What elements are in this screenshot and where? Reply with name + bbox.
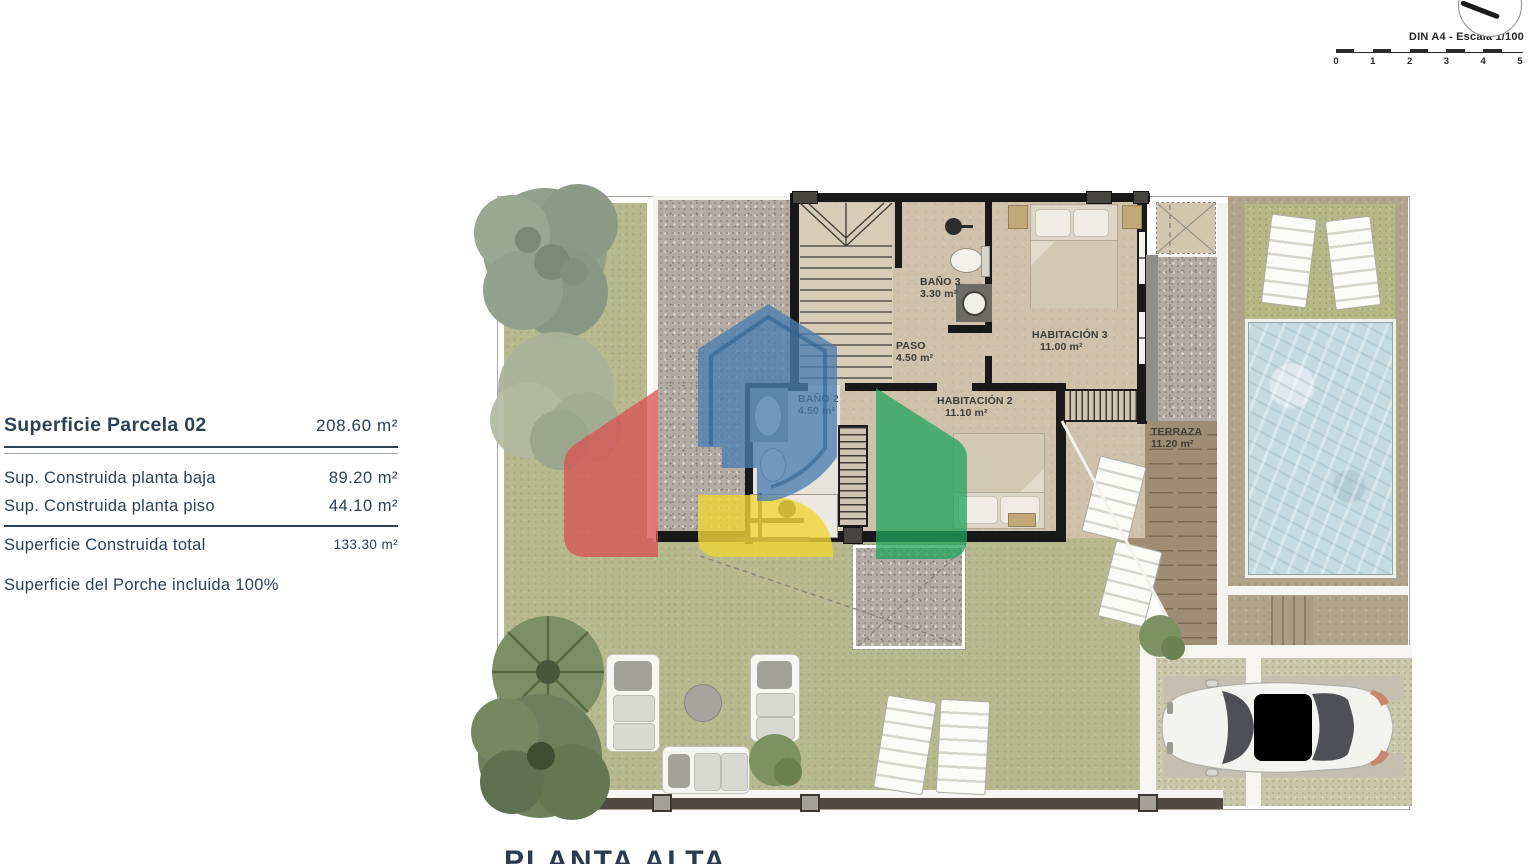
total-value: 133.30 m² <box>334 537 398 552</box>
summary-row: Sup. Construida planta baja 89.20 m² <box>4 464 398 492</box>
parcel-area-value: 208.60 m² <box>316 416 398 436</box>
row-value: 44.10 m² <box>329 492 398 520</box>
path-strip <box>1228 586 1408 595</box>
tick: 2 <box>1407 56 1412 67</box>
toilet-tank <box>981 246 990 277</box>
summary-total-row: Superficie Construida total 133.30 m² <box>4 536 398 555</box>
tick: 4 <box>1481 56 1486 67</box>
side-gravel-strip <box>1157 257 1217 421</box>
scale-dash <box>1483 49 1501 53</box>
wardrobe <box>1063 389 1139 422</box>
nightstand <box>1008 205 1028 229</box>
scale-line <box>1336 52 1523 53</box>
row-value: 89.20 m² <box>329 464 398 492</box>
room-label-terraza: TERRAZA11.20 m² <box>1151 426 1202 451</box>
wall <box>985 356 992 383</box>
shower-head-icon <box>778 500 796 518</box>
window-line <box>1139 337 1145 339</box>
roof-gravel-lower <box>653 385 753 542</box>
compass-needle <box>1460 0 1500 19</box>
scale-dash <box>1410 49 1428 53</box>
tick: 5 <box>1517 56 1522 67</box>
garden-bottom <box>504 538 1144 800</box>
path-strip <box>1246 645 1261 806</box>
toilet <box>950 248 983 273</box>
summary-row: Sup. Construida planta piso 44.10 m² <box>4 492 398 520</box>
summary-title-row: Superficie Parcela 02 208.60 m² <box>4 414 398 437</box>
wall <box>895 200 902 268</box>
wall <box>948 325 992 333</box>
sofa <box>662 746 750 794</box>
fence-post <box>800 794 820 812</box>
room-label-bano3: BAÑO 33.30 m² <box>920 276 961 301</box>
shower-rail <box>736 537 810 542</box>
parking-strip <box>1164 753 1404 777</box>
parcel-title: Superficie Parcela 02 <box>4 414 207 437</box>
row-label: Sup. Construida planta baja <box>4 464 216 492</box>
sun-lounger <box>936 699 991 795</box>
swimming-pool <box>1248 322 1393 575</box>
wall-pillar <box>1086 191 1112 204</box>
shower-arm <box>960 225 973 228</box>
room-label-paso: PASO4.50 m² <box>896 340 933 365</box>
tick: 0 <box>1333 56 1338 67</box>
coffee-table <box>684 684 722 722</box>
toilet <box>760 448 786 482</box>
wall-pillar <box>843 527 863 544</box>
pillow <box>958 496 998 524</box>
summary-panel: Superficie Parcela 02 208.60 m² Sup. Con… <box>4 414 398 595</box>
scale-dash <box>1446 49 1464 53</box>
blanket <box>954 434 1044 493</box>
deck-steps <box>1271 596 1313 648</box>
divider <box>4 525 398 527</box>
wall-pillar <box>1133 191 1149 204</box>
scale-dash <box>1336 49 1354 53</box>
shower-rail <box>758 493 762 537</box>
room-label-habitacion3: HABITACIÓN 311.00 m² <box>1032 329 1108 354</box>
fence-post <box>652 794 672 812</box>
porch-note: Superficie del Porche incluida 100% <box>4 576 398 595</box>
blanket <box>1031 240 1117 308</box>
wall <box>845 383 937 391</box>
total-label: Superficie Construida total <box>4 536 206 555</box>
pergola-projection <box>1157 203 1215 253</box>
porch-projection <box>856 548 962 646</box>
tick: 3 <box>1444 56 1449 67</box>
fence-post <box>1138 794 1158 812</box>
party-wall <box>1146 255 1158 421</box>
stairwell <box>798 203 893 385</box>
sofa <box>750 654 800 742</box>
sink <box>962 291 987 316</box>
tick: 1 <box>1370 56 1375 67</box>
window-line <box>1139 257 1145 259</box>
nightstand <box>1122 205 1142 229</box>
scale-ticks: 0 1 2 3 4 5 <box>1330 56 1526 68</box>
bench <box>1008 513 1036 527</box>
shower-rail <box>748 518 804 523</box>
path-strip <box>1217 203 1228 650</box>
shower-tray <box>750 494 838 538</box>
room-label-habitacion2: HABITACIÓN 211.10 m² <box>937 395 1013 420</box>
divider <box>4 446 398 454</box>
wall-pillar <box>792 191 818 204</box>
room-label-bano2: BAÑO 24.50 m² <box>798 393 839 418</box>
fence <box>540 798 1223 809</box>
pillow <box>1035 209 1071 237</box>
parking-strip <box>1164 676 1404 700</box>
path-strip <box>1140 645 1412 658</box>
pillow <box>1073 209 1109 237</box>
wall <box>790 193 799 390</box>
scale-ruler <box>1330 47 1526 56</box>
sofa <box>606 654 660 752</box>
scale-dash <box>1373 49 1391 53</box>
row-label: Sup. Construida planta piso <box>4 492 215 520</box>
wardrobe <box>838 425 868 527</box>
wall <box>972 383 1060 391</box>
scale-bar: DIN A4 - Escala 1/100 0 1 2 3 4 5 <box>1330 31 1526 68</box>
plan-title: PLANTA ALTA <box>504 845 727 864</box>
plan-sheet: Superficie Parcela 02 208.60 m² Sup. Con… <box>0 0 1536 864</box>
sink <box>754 395 782 437</box>
path-strip <box>1140 645 1156 806</box>
